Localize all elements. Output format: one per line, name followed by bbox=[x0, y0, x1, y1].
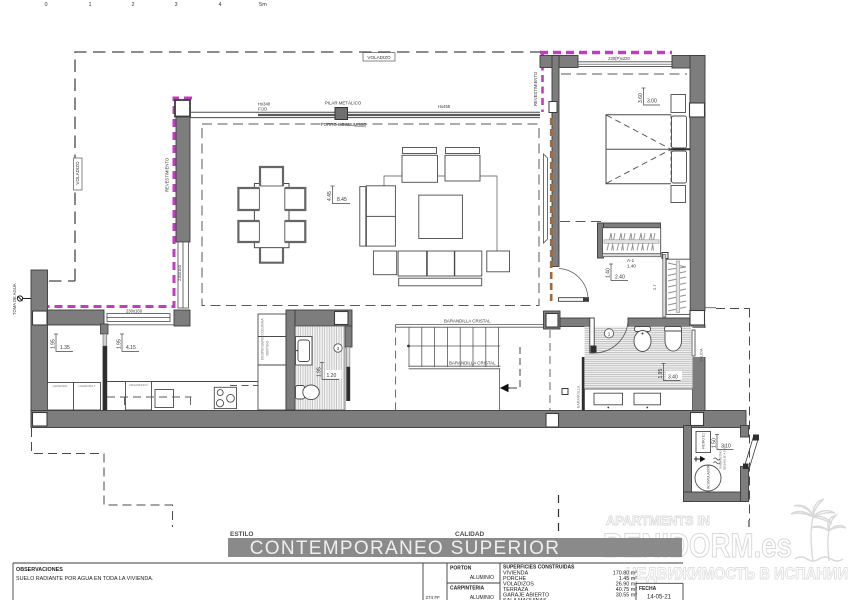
svg-text:3.40: 3.40 bbox=[668, 375, 678, 381]
svg-text:НЕДВИЖИМОСТЬ В ИСПАНИИ: НЕДВИЖИМОСТЬ В ИСПАНИИ bbox=[626, 565, 848, 583]
svg-text:1.95: 1.95 bbox=[658, 369, 664, 379]
svg-text:ALUMINIO: ALUMINIO bbox=[470, 595, 494, 600]
svg-text:REVESTIMIENTO: REVESTIMIENTO bbox=[165, 157, 170, 192]
svg-text:VOLADIZO: VOLADIZO bbox=[75, 161, 80, 185]
svg-text:BARANDILLA CRISTAL: BARANDILLA CRISTAL bbox=[444, 319, 491, 324]
svg-text:1.95: 1.95 bbox=[317, 367, 323, 377]
svg-text:ACUMULADOR: ACUMULADOR bbox=[707, 464, 711, 489]
svg-text:VERTIGO: VERTIGO bbox=[266, 340, 270, 356]
svg-text:8.45: 8.45 bbox=[337, 197, 347, 203]
svg-text:BARANDILLA: BARANDILLA bbox=[577, 385, 581, 408]
svg-text:DESPENSERO COLUMNA: DESPENSERO COLUMNA bbox=[261, 318, 265, 360]
svg-text:VOLADIZO: VOLADIZO bbox=[367, 55, 391, 60]
svg-text:1.20: 1.20 bbox=[327, 373, 337, 379]
svg-text:1.95: 1.95 bbox=[51, 339, 57, 349]
svg-text:0: 0 bbox=[44, 2, 47, 8]
svg-text:OBSERVACIONES: OBSERVACIONES bbox=[16, 567, 63, 573]
svg-text:TOMA DE AGUA: TOMA DE AGUA bbox=[12, 283, 17, 315]
svg-text:1.95: 1.95 bbox=[117, 339, 123, 349]
svg-text:274 FF: 274 FF bbox=[425, 595, 440, 600]
svg-text:1.40: 1.40 bbox=[627, 264, 636, 269]
svg-text:APARTMENTS IN: APARTMENTS IN bbox=[606, 513, 710, 528]
svg-text:230x160: 230x160 bbox=[177, 264, 182, 281]
svg-text:A-1: A-1 bbox=[627, 258, 635, 263]
svg-text:REVESTIMIENTO: REVESTIMIENTO bbox=[533, 71, 538, 106]
svg-text:4.45: 4.45 bbox=[327, 191, 333, 201]
svg-text:CALIDAD: CALIDAD bbox=[455, 531, 485, 538]
svg-text:1: 1 bbox=[608, 332, 611, 337]
svg-text:PORTON: PORTON bbox=[450, 566, 472, 572]
svg-text:230(P)x220: 230(P)x220 bbox=[608, 56, 630, 61]
svg-text:FRIGORIFICO: FRIGORIFICO bbox=[129, 383, 148, 387]
svg-text:2.40: 2.40 bbox=[615, 275, 625, 281]
svg-text:14-05-21: 14-05-21 bbox=[647, 595, 672, 600]
svg-text:3: 3 bbox=[174, 2, 177, 8]
svg-text:1: 1 bbox=[88, 2, 91, 8]
svg-text:1.40: 1.40 bbox=[606, 268, 612, 278]
svg-text:30.55 m²: 30.55 m² bbox=[616, 593, 637, 599]
svg-text:FIJO: FIJO bbox=[258, 107, 268, 112]
svg-text:SALIDA: SALIDA bbox=[700, 348, 704, 362]
svg-text:2.7: 2.7 bbox=[652, 284, 657, 290]
svg-text:FECHA: FECHA bbox=[639, 586, 657, 592]
svg-text:CARPINTERIA: CARPINTERIA bbox=[450, 586, 485, 592]
svg-text:HIDRO E1: HIDRO E1 bbox=[702, 433, 706, 449]
svg-text:LAVADORA T: LAVADORA T bbox=[78, 384, 95, 388]
svg-text:1.50: 1.50 bbox=[712, 438, 718, 448]
svg-text:BARANDILLA CRISTAL: BARANDILLA CRISTAL bbox=[449, 360, 496, 365]
svg-text:ALUMINIO: ALUMINIO bbox=[470, 575, 494, 581]
svg-text:5m: 5m bbox=[259, 2, 267, 8]
svg-text:DESAGUE A FOSA: DESAGUE A FOSA bbox=[723, 444, 727, 470]
svg-text:3.60: 3.60 bbox=[638, 93, 644, 103]
svg-text:4: 4 bbox=[218, 2, 221, 8]
svg-text:CONTEMPORANEO SUPERIOR: CONTEMPORANEO SUPERIOR bbox=[250, 538, 560, 559]
svg-text:2: 2 bbox=[131, 2, 134, 8]
svg-text:ESTILO: ESTILO bbox=[230, 531, 253, 538]
svg-text:SUELO RADIANTE POR AGUA EN TOD: SUELO RADIANTE POR AGUA EN TODA LA VIVIE… bbox=[16, 576, 153, 582]
svg-text:4.15: 4.15 bbox=[126, 345, 136, 351]
svg-text:3.00: 3.00 bbox=[647, 99, 657, 105]
svg-text:230x160: 230x160 bbox=[126, 309, 143, 314]
svg-text:Hx455: Hx455 bbox=[438, 104, 451, 109]
svg-text:1.35: 1.35 bbox=[60, 345, 70, 351]
svg-text:PILAR METÁLICO: PILAR METÁLICO bbox=[325, 101, 362, 106]
svg-text:LAVADORA: LAVADORA bbox=[53, 384, 68, 388]
